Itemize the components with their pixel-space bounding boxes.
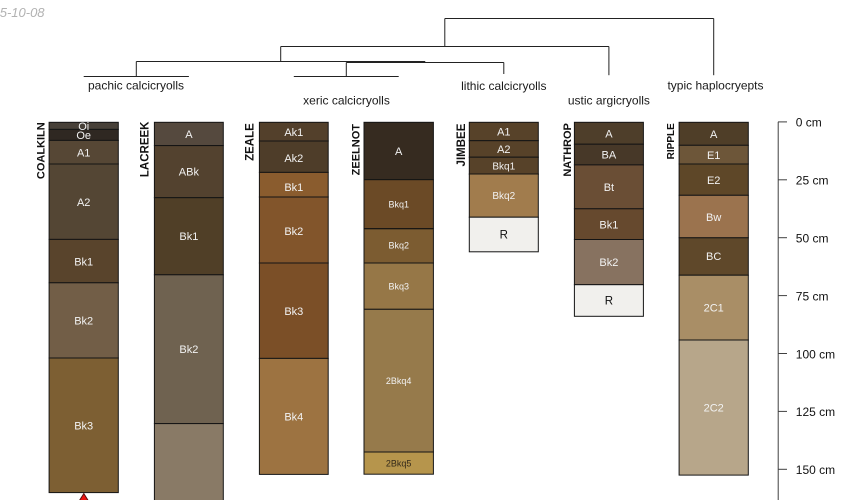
svg-text:Bk1: Bk1 bbox=[599, 219, 618, 231]
svg-text:Bk1: Bk1 bbox=[179, 231, 198, 243]
svg-text:Bkq2: Bkq2 bbox=[388, 241, 409, 251]
svg-text:E2: E2 bbox=[707, 175, 720, 187]
svg-text:BA: BA bbox=[602, 150, 617, 162]
svg-text:Bk2: Bk2 bbox=[179, 344, 198, 356]
svg-text:E1: E1 bbox=[707, 150, 720, 162]
svg-text:ABk: ABk bbox=[179, 167, 200, 179]
svg-text:Bkq1: Bkq1 bbox=[388, 200, 409, 210]
svg-text:100 cm: 100 cm bbox=[796, 347, 835, 361]
svg-text:A: A bbox=[710, 129, 718, 141]
svg-text:2Bkq5: 2Bkq5 bbox=[386, 458, 412, 468]
svg-text:Ak1: Ak1 bbox=[284, 127, 303, 139]
svg-text:lithic calcicryolls: lithic calcicryolls bbox=[461, 79, 546, 93]
svg-text:150 cm: 150 cm bbox=[796, 463, 835, 477]
svg-text:Bk2: Bk2 bbox=[599, 257, 618, 269]
svg-text:0 cm: 0 cm bbox=[796, 116, 822, 130]
svg-text:Bw: Bw bbox=[706, 212, 721, 224]
svg-text:COALKILN: COALKILN bbox=[35, 122, 47, 179]
svg-text:A1: A1 bbox=[77, 148, 90, 160]
svg-text:R: R bbox=[500, 230, 508, 242]
svg-text:Bt: Bt bbox=[604, 182, 614, 194]
svg-text:RIPPLE: RIPPLE bbox=[666, 123, 677, 159]
svg-text:A2: A2 bbox=[77, 197, 90, 209]
svg-text:Bkq3: Bkq3 bbox=[388, 281, 409, 291]
svg-text:xeric calcicryolls: xeric calcicryolls bbox=[303, 94, 390, 108]
svg-text:2Bkq4: 2Bkq4 bbox=[386, 376, 412, 386]
svg-text:Bk2: Bk2 bbox=[284, 226, 303, 238]
svg-text:Bk3: Bk3 bbox=[74, 421, 93, 433]
svg-text:JIMBEE: JIMBEE bbox=[456, 123, 468, 166]
svg-text:25 cm: 25 cm bbox=[796, 174, 829, 188]
svg-text:2C1: 2C1 bbox=[704, 303, 724, 315]
svg-text:Bk1: Bk1 bbox=[74, 256, 93, 268]
svg-text:05-10-08: 05-10-08 bbox=[0, 5, 45, 20]
svg-text:BC: BC bbox=[706, 251, 721, 263]
svg-text:50 cm: 50 cm bbox=[796, 232, 829, 246]
svg-text:Bkq2: Bkq2 bbox=[492, 191, 515, 202]
svg-text:A2: A2 bbox=[497, 144, 510, 156]
svg-text:Bkq1: Bkq1 bbox=[492, 161, 515, 172]
svg-text:A: A bbox=[605, 128, 613, 140]
svg-text:Bk2: Bk2 bbox=[74, 316, 93, 328]
svg-text:Bk4: Bk4 bbox=[284, 412, 303, 424]
svg-text:A1: A1 bbox=[497, 127, 510, 139]
svg-text:Bk1: Bk1 bbox=[284, 182, 303, 194]
svg-text:75 cm: 75 cm bbox=[796, 289, 829, 303]
svg-text:Bk3: Bk3 bbox=[284, 306, 303, 318]
svg-text:125 cm: 125 cm bbox=[796, 405, 835, 419]
svg-text:NATHROP: NATHROP bbox=[562, 123, 574, 177]
svg-text:Ak2: Ak2 bbox=[284, 153, 303, 165]
svg-text:A: A bbox=[185, 129, 193, 141]
svg-text:ustic argicryolls: ustic argicryolls bbox=[568, 94, 650, 108]
svg-text:R: R bbox=[605, 296, 613, 308]
svg-text:Oe: Oe bbox=[76, 130, 91, 142]
svg-text:ZEELNOT: ZEELNOT bbox=[351, 124, 363, 176]
svg-text:A: A bbox=[395, 146, 403, 158]
svg-text:LACREEK: LACREEK bbox=[140, 121, 152, 177]
svg-text:2C2: 2C2 bbox=[704, 403, 724, 415]
svg-text:ZEALE: ZEALE bbox=[245, 123, 257, 161]
svg-text:typic haplocryepts: typic haplocryepts bbox=[667, 79, 763, 93]
svg-text:pachic calcicryolls: pachic calcicryolls bbox=[88, 79, 184, 93]
